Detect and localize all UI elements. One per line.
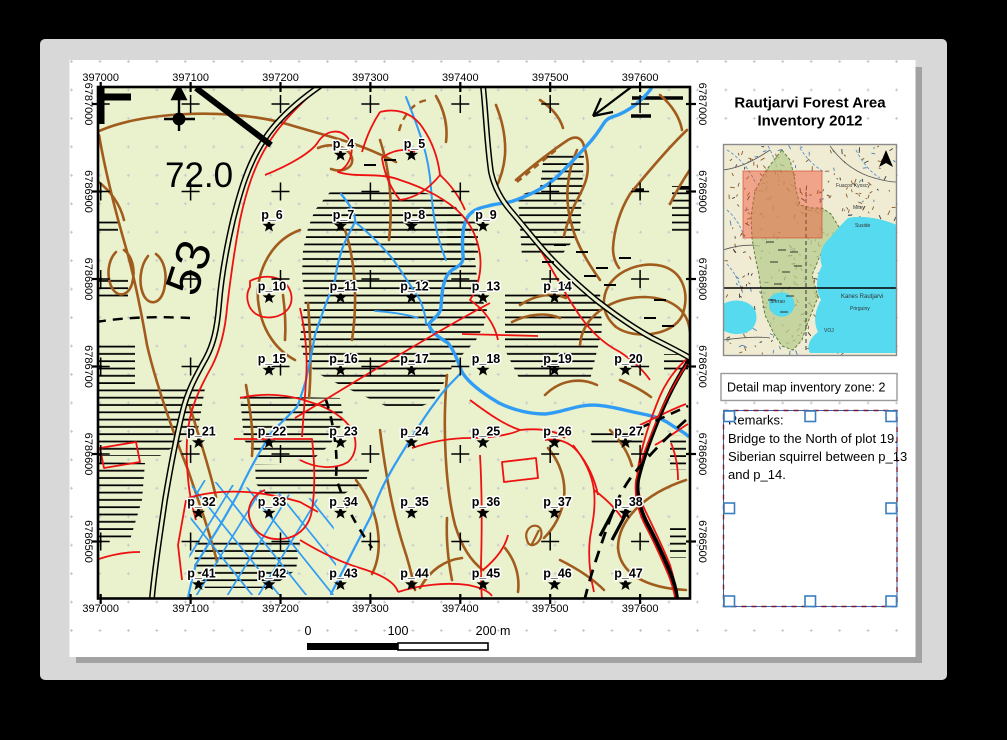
svg-text:p_41: p_41 xyxy=(187,567,216,581)
svg-text:397200: 397200 xyxy=(262,72,299,84)
svg-text:p_8: p_8 xyxy=(404,208,426,222)
svg-text:6786600: 6786600 xyxy=(82,433,94,476)
svg-text:Bridge to the North of plot 19: Bridge to the North of plot 19. xyxy=(728,431,898,446)
svg-text:6786700: 6786700 xyxy=(82,345,94,388)
svg-text:p_37: p_37 xyxy=(543,495,572,509)
svg-text:p_10: p_10 xyxy=(258,280,287,294)
svg-text:p_44: p_44 xyxy=(400,567,429,581)
svg-text:p_11: p_11 xyxy=(330,280,358,294)
svg-text:6786900: 6786900 xyxy=(82,170,94,213)
svg-text:p_21: p_21 xyxy=(187,425,216,439)
svg-text:p_18: p_18 xyxy=(472,352,501,366)
svg-text:VOJ: VOJ xyxy=(824,328,834,334)
svg-text:and p_14.: and p_14. xyxy=(728,467,786,482)
svg-text:0: 0 xyxy=(305,624,312,638)
svg-text:p_32: p_32 xyxy=(187,495,216,509)
svg-text:397400: 397400 xyxy=(442,72,479,84)
svg-text:p_24: p_24 xyxy=(400,425,429,439)
svg-text:p_14: p_14 xyxy=(543,280,572,294)
svg-text:397100: 397100 xyxy=(172,603,209,615)
svg-text:p_25: p_25 xyxy=(472,425,501,439)
svg-text:p_20: p_20 xyxy=(614,352,643,366)
svg-text:72.0: 72.0 xyxy=(165,156,233,195)
svg-text:p_34: p_34 xyxy=(329,495,358,509)
svg-text:200 m: 200 m xyxy=(476,624,511,638)
svg-text:100: 100 xyxy=(388,624,409,638)
svg-text:Detail map inventory zone: 2: Detail map inventory zone: 2 xyxy=(727,381,885,395)
svg-text:p_36: p_36 xyxy=(472,495,501,509)
svg-text:6786500: 6786500 xyxy=(696,520,708,563)
svg-text:Fuacos Kyoscy: Fuacos Kyoscy xyxy=(836,183,870,189)
svg-text:p_45: p_45 xyxy=(472,567,501,581)
svg-text:397300: 397300 xyxy=(352,72,389,84)
svg-text:6786900: 6786900 xyxy=(696,170,708,213)
svg-text:Remarks:: Remarks: xyxy=(728,413,784,428)
svg-text:397200: 397200 xyxy=(262,603,299,615)
svg-text:6786700: 6786700 xyxy=(696,345,708,388)
svg-text:p_46: p_46 xyxy=(543,567,572,581)
svg-text:6786600: 6786600 xyxy=(696,433,708,476)
svg-text:p_19: p_19 xyxy=(543,352,572,366)
svg-text:p_6: p_6 xyxy=(261,208,283,222)
svg-text:p_38: p_38 xyxy=(614,495,643,509)
svg-text:p_16: p_16 xyxy=(329,352,358,366)
svg-text:397600: 397600 xyxy=(622,603,659,615)
svg-text:p_15: p_15 xyxy=(258,352,287,366)
svg-text:p_42: p_42 xyxy=(258,567,287,581)
svg-text:6786500: 6786500 xyxy=(82,520,94,563)
svg-text:p_13: p_13 xyxy=(472,280,501,294)
svg-text:p_33: p_33 xyxy=(258,495,287,509)
svg-text:p_35: p_35 xyxy=(400,495,429,509)
svg-text:397300: 397300 xyxy=(352,603,389,615)
svg-text:Kanes Rautjarvi: Kanes Rautjarvi xyxy=(841,294,883,300)
svg-text:Siberian squirrel between p_13: Siberian squirrel between p_13 xyxy=(728,449,907,464)
svg-text:397500: 397500 xyxy=(532,603,569,615)
svg-text:6786800: 6786800 xyxy=(82,258,94,301)
svg-text:p_7: p_7 xyxy=(333,208,355,222)
svg-text:p_47: p_47 xyxy=(614,567,643,581)
svg-text:397100: 397100 xyxy=(172,72,209,84)
svg-text:397600: 397600 xyxy=(622,72,659,84)
svg-text:p_27: p_27 xyxy=(614,425,643,439)
svg-text:p_5: p_5 xyxy=(404,137,426,151)
svg-text:6786800: 6786800 xyxy=(696,258,708,301)
svg-text:p_17: p_17 xyxy=(400,352,429,366)
svg-text:Prirguiny: Prirguiny xyxy=(850,306,870,312)
svg-text:p_22: p_22 xyxy=(258,425,287,439)
svg-text:p_9: p_9 xyxy=(475,208,497,222)
svg-text:Rautjarvi Forest Area: Rautjarvi Forest Area xyxy=(734,95,886,112)
svg-text:p_23: p_23 xyxy=(329,425,358,439)
svg-text:Inventory 2012: Inventory 2012 xyxy=(757,113,862,130)
svg-text:397500: 397500 xyxy=(532,72,569,84)
svg-text:Suside: Suside xyxy=(855,223,871,229)
svg-text:p_12: p_12 xyxy=(400,280,429,294)
svg-text:p_26: p_26 xyxy=(543,425,572,439)
svg-text:397400: 397400 xyxy=(442,603,479,615)
svg-text:Mitsy: Mitsy xyxy=(853,205,865,211)
svg-text:p_43: p_43 xyxy=(329,567,358,581)
svg-text:6787000: 6787000 xyxy=(696,83,708,126)
svg-text:397000: 397000 xyxy=(82,603,119,615)
svg-text:6787000: 6787000 xyxy=(82,83,94,126)
svg-text:p_4: p_4 xyxy=(333,137,355,151)
